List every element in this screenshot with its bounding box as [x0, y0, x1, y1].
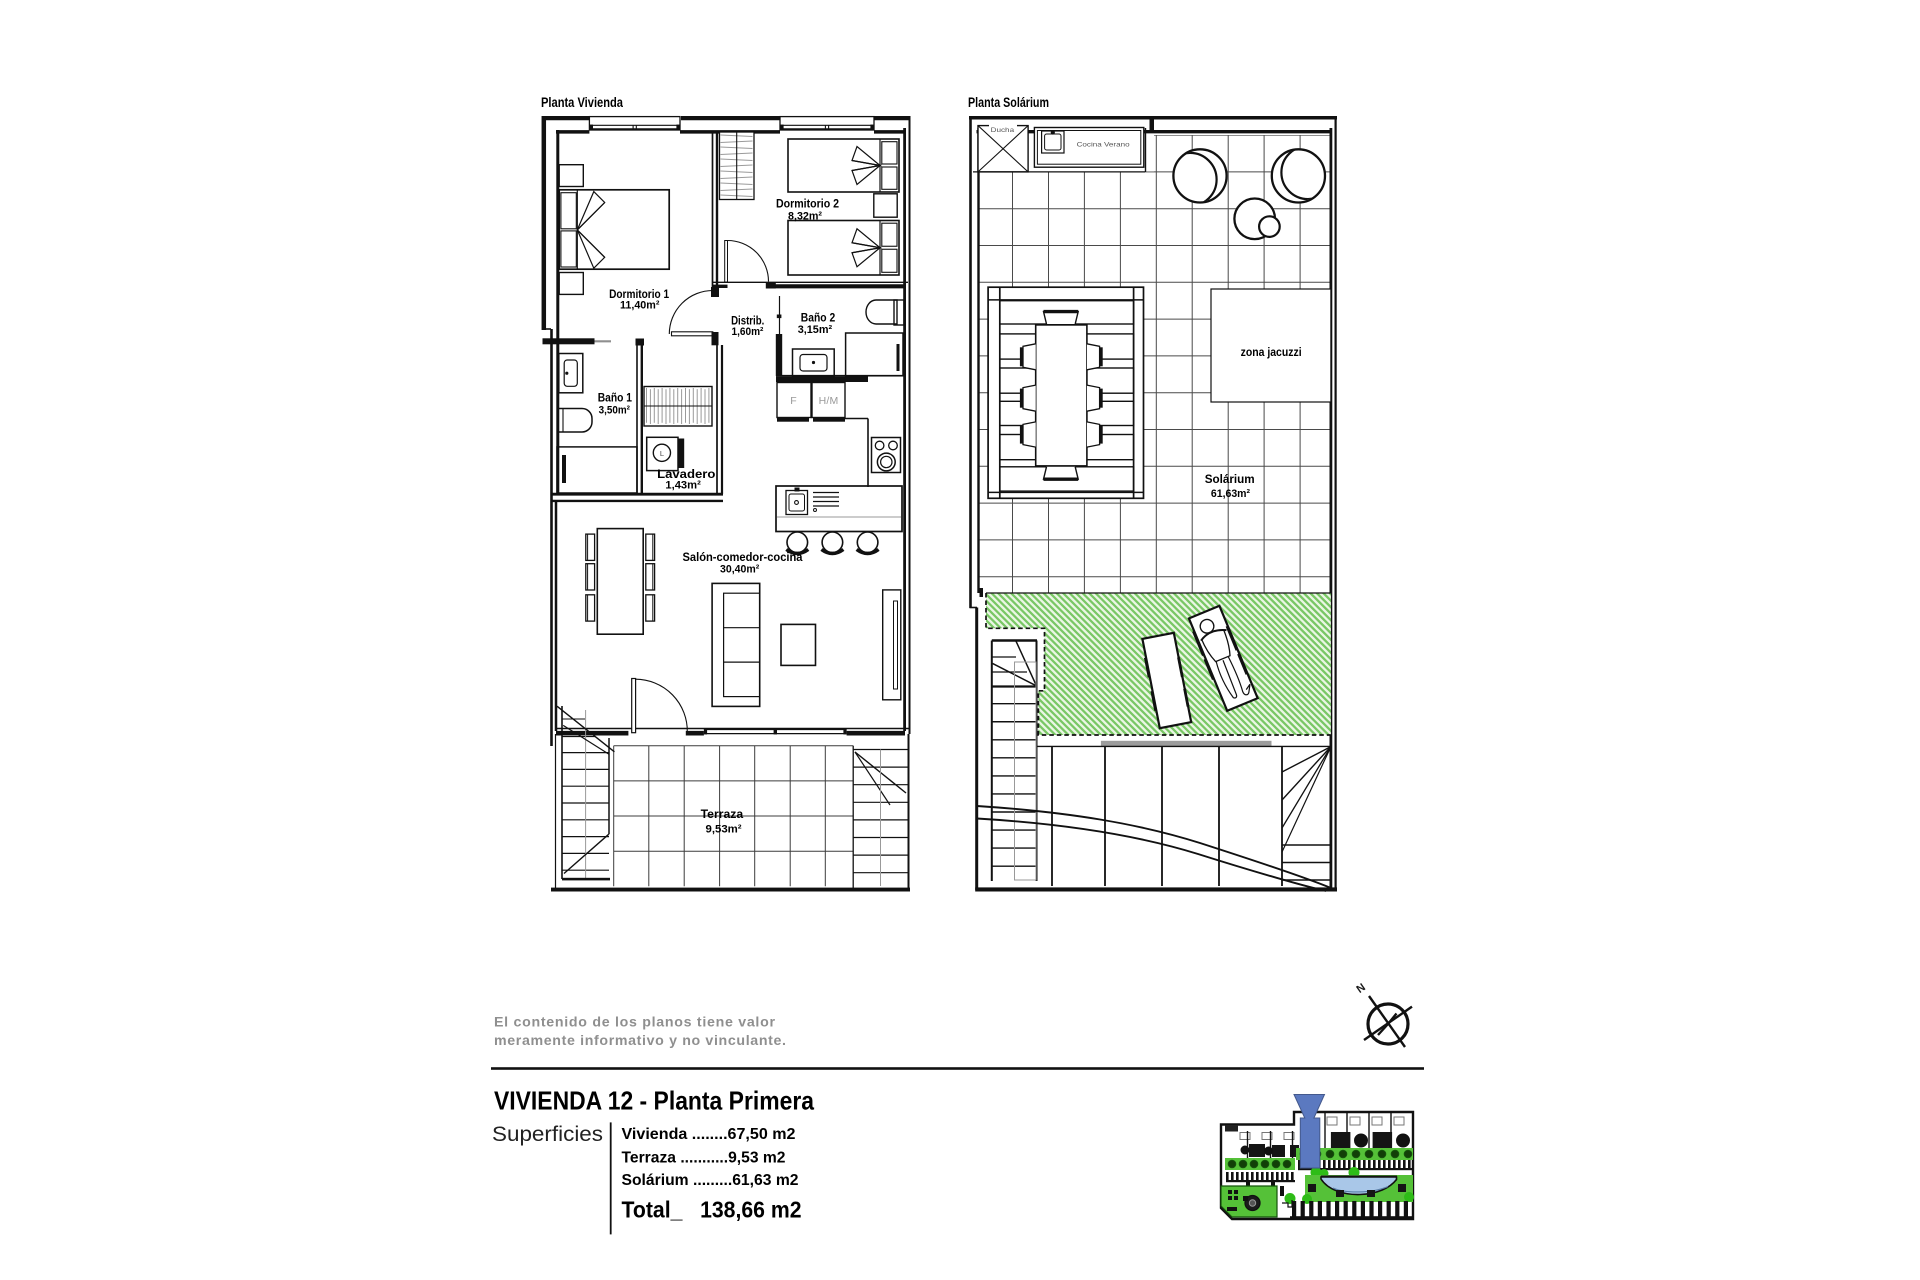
svg-text:61,63m²: 61,63m²: [1211, 488, 1250, 500]
svg-text:L: L: [660, 449, 664, 458]
svg-text:Planta Solárium: Planta Solárium: [968, 95, 1049, 110]
svg-text:11,40m²: 11,40m²: [620, 300, 660, 312]
svg-text:Baño 2: Baño 2: [801, 312, 835, 325]
svg-text:Planta Vivienda: Planta Vivienda: [541, 95, 623, 110]
svg-text:1,43m²: 1,43m²: [665, 479, 701, 491]
svg-text:Vivienda ........67,50 m2: Vivienda ........67,50 m2: [622, 1126, 796, 1143]
svg-text:Terraza ...........9,53 m2: Terraza ...........9,53 m2: [622, 1150, 786, 1167]
svg-text:Superficies: Superficies: [492, 1122, 603, 1146]
svg-text:meramente informativo y no vin: meramente informativo y no vinculante.: [494, 1033, 786, 1049]
svg-text:Solárium: Solárium: [1205, 472, 1255, 486]
svg-text:Solárium .........61,63 m2: Solárium .........61,63 m2: [622, 1172, 799, 1189]
svg-text:Total_ 138,66 m2: Total_ 138,66 m2: [622, 1197, 802, 1223]
svg-text:Cocina Verano: Cocina Verano: [1077, 142, 1130, 149]
svg-text:Salón-comedor-cocina: Salón-comedor-cocina: [683, 550, 803, 564]
svg-text:9,53m²: 9,53m²: [706, 824, 742, 836]
svg-text:Ducha: Ducha: [991, 127, 1015, 134]
svg-text:El contenido de los planos tie: El contenido de los planos tiene valor: [494, 1015, 775, 1031]
svg-text:Dormitorio 2: Dormitorio 2: [776, 197, 839, 211]
svg-text:3,15m²: 3,15m²: [798, 324, 833, 336]
svg-text:zona jacuzzi: zona jacuzzi: [1241, 345, 1302, 359]
svg-text:Terraza: Terraza: [701, 807, 744, 821]
svg-text:8,32m²: 8,32m²: [788, 211, 822, 223]
svg-text:F: F: [790, 395, 797, 407]
svg-text:H/M: H/M: [819, 395, 839, 407]
svg-text:Baño 1: Baño 1: [598, 392, 633, 405]
svg-text:VIVIENDA 12 - Planta Primera: VIVIENDA 12 - Planta Primera: [494, 1086, 814, 1116]
svg-text:3,50m²: 3,50m²: [599, 405, 631, 417]
svg-text:30,40m²: 30,40m²: [720, 564, 759, 576]
svg-text:1,60m²: 1,60m²: [732, 326, 764, 338]
